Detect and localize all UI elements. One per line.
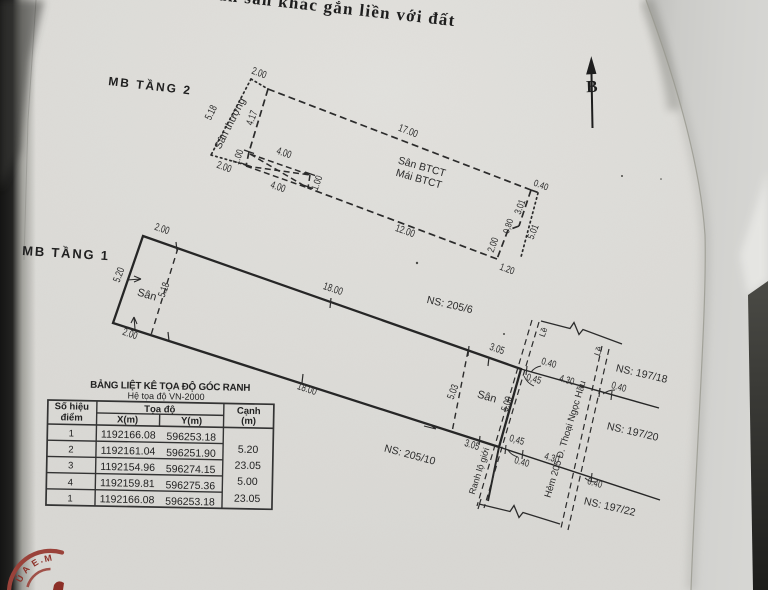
svg-text:4: 4 — [68, 477, 74, 488]
svg-text:596275.36: 596275.36 — [165, 479, 215, 492]
svg-text:1192154.96: 1192154.96 — [100, 461, 155, 474]
svg-text:3: 3 — [68, 460, 74, 471]
svg-text:Số hiệu: Số hiệu — [55, 401, 90, 413]
svg-text:(m): (m) — [241, 416, 256, 427]
svg-text:23.05: 23.05 — [234, 460, 261, 473]
svg-text:điểm: điểm — [60, 412, 82, 423]
svg-text:5.00: 5.00 — [237, 476, 258, 488]
svg-text:1192166.08: 1192166.08 — [100, 493, 155, 506]
svg-text:596253.18: 596253.18 — [165, 496, 215, 509]
svg-text:596253.18: 596253.18 — [166, 431, 216, 444]
svg-text:5.20: 5.20 — [238, 444, 259, 456]
svg-text:Y(m): Y(m) — [181, 416, 202, 427]
svg-text:1: 1 — [69, 428, 75, 439]
svg-text:596274.15: 596274.15 — [166, 463, 216, 476]
svg-text:1: 1 — [67, 493, 73, 504]
svg-text:B: B — [586, 77, 598, 96]
svg-text:596251.90: 596251.90 — [166, 447, 216, 460]
svg-text:23.05: 23.05 — [234, 493, 261, 506]
svg-text:2: 2 — [68, 444, 74, 455]
svg-text:1192166.08: 1192166.08 — [101, 429, 156, 442]
svg-text:1192161.04: 1192161.04 — [101, 445, 156, 458]
svg-text:Tọa độ: Tọa độ — [144, 404, 176, 416]
svg-text:X(m): X(m) — [117, 414, 138, 425]
svg-text:1192159.81: 1192159.81 — [100, 477, 155, 490]
svg-text:Hệ tọa độ VN-2000: Hệ tọa độ VN-2000 — [127, 391, 204, 402]
